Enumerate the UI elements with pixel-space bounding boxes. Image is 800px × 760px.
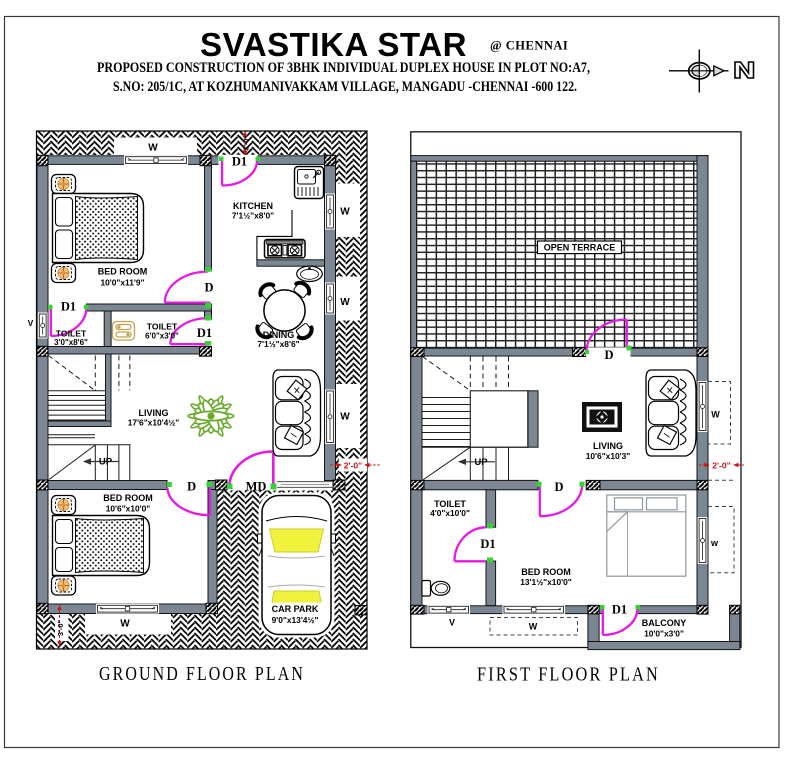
svg-text:10'6"x10'0": 10'6"x10'0" [106,504,151,514]
svg-text:W: W [148,143,158,154]
svg-text:13'1½"x10'0": 13'1½"x10'0" [520,577,572,587]
svg-text:BED ROOM: BED ROOM [98,267,148,277]
svg-text:3'0"x8'6": 3'0"x8'6" [54,338,88,347]
svg-text:GROUND FLOOR PLAN: GROUND FLOOR PLAN [99,664,305,685]
svg-text:SVASTIKA STAR: SVASTIKA STAR [200,26,467,63]
svg-text:7'1½"x8'6": 7'1½"x8'6" [257,339,299,349]
svg-text:W: W [340,412,350,423]
svg-text:V: V [28,318,34,328]
svg-text:D1: D1 [480,537,495,551]
svg-text:@ CHENNAI: @ CHENNAI [490,39,568,53]
svg-text:10'6"x10'3": 10'6"x10'3" [586,451,631,461]
svg-text:10'0"x11'9": 10'0"x11'9" [100,278,144,288]
svg-text:3'-0": 3'-0" [244,135,251,150]
svg-text:D1: D1 [61,300,76,314]
svg-text:TOILET: TOILET [147,322,178,332]
svg-text:2'-0": 2'-0" [344,461,363,471]
svg-text:3'-0": 3'-0" [56,619,65,636]
svg-text:PROPOSED CONSTRUCTION OF 3BHK: PROPOSED CONSTRUCTION OF 3BHK INDIVIDUAL… [97,60,590,76]
svg-text:W: W [120,619,130,630]
svg-text:V: V [449,618,455,628]
svg-text:BALCONY: BALCONY [642,618,687,628]
svg-text:W: W [529,622,538,632]
svg-text:W: W [711,410,720,420]
svg-text:LIVING: LIVING [138,408,168,418]
svg-text:W: W [340,297,350,308]
svg-text:D: D [204,281,213,295]
svg-text:D: D [604,348,613,362]
svg-text:KITCHEN: KITCHEN [233,201,273,211]
svg-text:10'0"x3'0": 10'0"x3'0" [644,629,684,639]
svg-text:BED ROOM: BED ROOM [103,493,153,503]
svg-text:MD: MD [246,480,267,494]
svg-text:FIRST FLOOR PLAN: FIRST FLOOR PLAN [477,665,660,686]
svg-text:D1: D1 [232,155,247,169]
svg-text:D: D [187,480,196,494]
svg-text:17'6"x10'4½": 17'6"x10'4½" [128,418,180,428]
svg-text:UP: UP [474,457,488,468]
svg-text:w: w [710,538,719,548]
svg-text:CAR PARK: CAR PARK [272,604,319,614]
svg-text:BED ROOM: BED ROOM [521,567,571,577]
svg-text:LIVING: LIVING [593,441,623,451]
svg-text:9'0"x13'4½": 9'0"x13'4½" [272,615,319,625]
svg-text:2'-0": 2'-0" [712,461,731,471]
svg-text:TOILET: TOILET [56,329,87,339]
svg-text:6'0"x3'0": 6'0"x3'0" [145,332,179,341]
svg-text:7'1½"x8'0": 7'1½"x8'0" [232,211,274,221]
svg-text:UP: UP [99,457,113,468]
svg-text:D: D [554,480,563,494]
svg-text:OPEN TERRACE: OPEN TERRACE [544,243,616,253]
svg-text:D1: D1 [197,326,212,340]
svg-text:4'0"x10'0": 4'0"x10'0" [430,508,470,518]
svg-text:S.NO: 205/1C, AT KOZHUMANIVAKK: S.NO: 205/1C, AT KOZHUMANIVAKKAM VILLAGE… [113,79,577,95]
svg-text:W: W [340,207,350,218]
svg-text:D1: D1 [612,603,627,617]
